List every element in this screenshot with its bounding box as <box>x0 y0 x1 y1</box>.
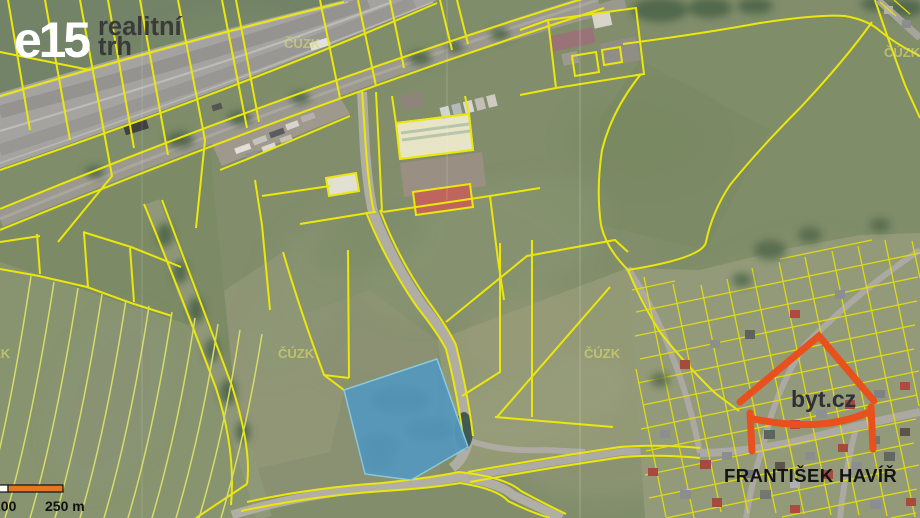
svg-text:trh: trh <box>98 33 132 61</box>
svg-text:ČÚZK: ČÚZK <box>0 346 11 361</box>
svg-text:ČÚZK: ČÚZK <box>278 346 315 361</box>
svg-text:ČÚZK: ČÚZK <box>284 36 321 51</box>
svg-text:e15: e15 <box>14 12 90 68</box>
svg-text:ČÚZK: ČÚZK <box>584 346 621 361</box>
svg-text:ČÚZK: ČÚZK <box>884 45 920 60</box>
svg-text:byt.cz: byt.cz <box>791 386 856 412</box>
svg-text:200: 200 <box>0 498 17 514</box>
svg-text:FRANTIŠEK HAVÍŘ: FRANTIŠEK HAVÍŘ <box>724 465 897 486</box>
svg-text:250 m: 250 m <box>45 498 85 514</box>
